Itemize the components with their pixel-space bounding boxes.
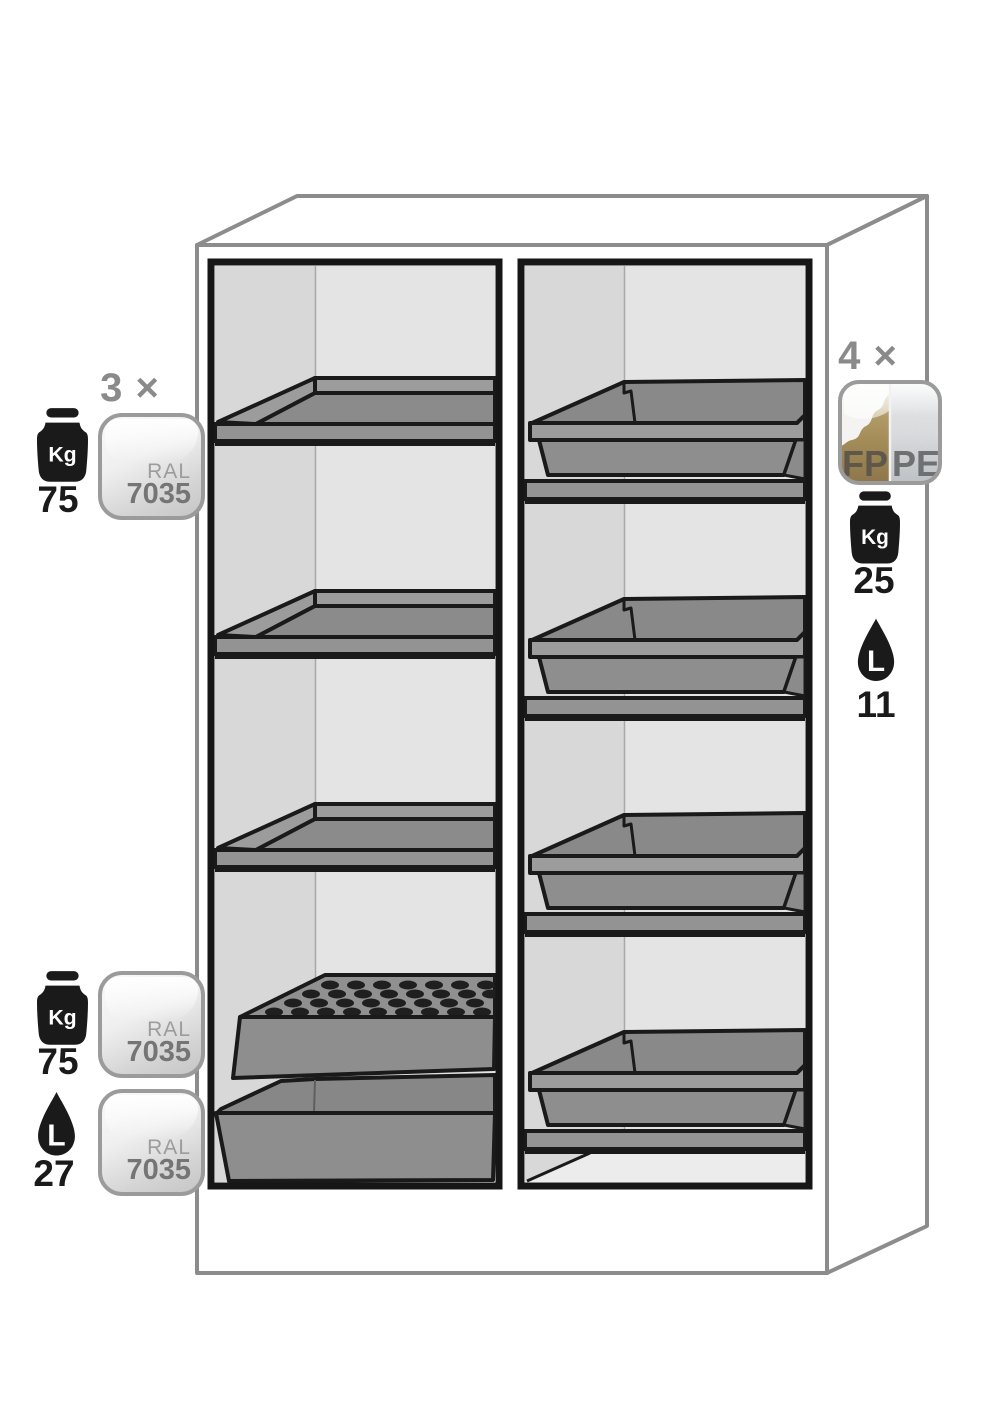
left-shelf-count-label: 3 × [90, 368, 170, 408]
volume-drop-icon: L [855, 617, 897, 683]
ral-code: 7035 [126, 1157, 191, 1185]
right-compartment [521, 262, 809, 1186]
weight-icon: Kg [850, 491, 900, 566]
ral-color-badge: RAL 7035 [98, 413, 205, 520]
volume-drop-icon: L [35, 1091, 78, 1157]
ral-code: 7035 [126, 1039, 191, 1067]
weight-icon-unit: Kg [48, 443, 76, 467]
ral-color-badge: RAL 7035 [98, 971, 205, 1078]
weight-icon-unit: Kg [861, 526, 889, 549]
material-badge-fp-pe: FP PE [838, 380, 942, 485]
sump-volume-value: 27 [22, 1155, 86, 1192]
ral-code: 7035 [126, 481, 191, 509]
diagram-canvas: 3 × Kg 75 RAL 7035 Kg 75 RAL 7035 L 27 R… [0, 0, 1004, 1419]
right-tray-count-label: 4 × [828, 336, 908, 376]
volume-icon-unit: L [47, 1119, 65, 1152]
bottom-sump [216, 1075, 495, 1181]
left-compartment [211, 262, 500, 1186]
weight-icon: Kg [37, 971, 88, 1047]
volume-icon-unit: L [867, 645, 885, 678]
ral-color-badge: RAL 7035 [98, 1089, 205, 1196]
weight-icon-unit: Kg [48, 1006, 76, 1030]
sump-insert-load-value: 75 [26, 1043, 90, 1080]
left-shelf-load-value: 75 [26, 481, 90, 518]
weight-icon: Kg [37, 408, 88, 484]
tray-volume-value: 11 [844, 686, 908, 723]
tray-load-value: 25 [842, 562, 906, 599]
